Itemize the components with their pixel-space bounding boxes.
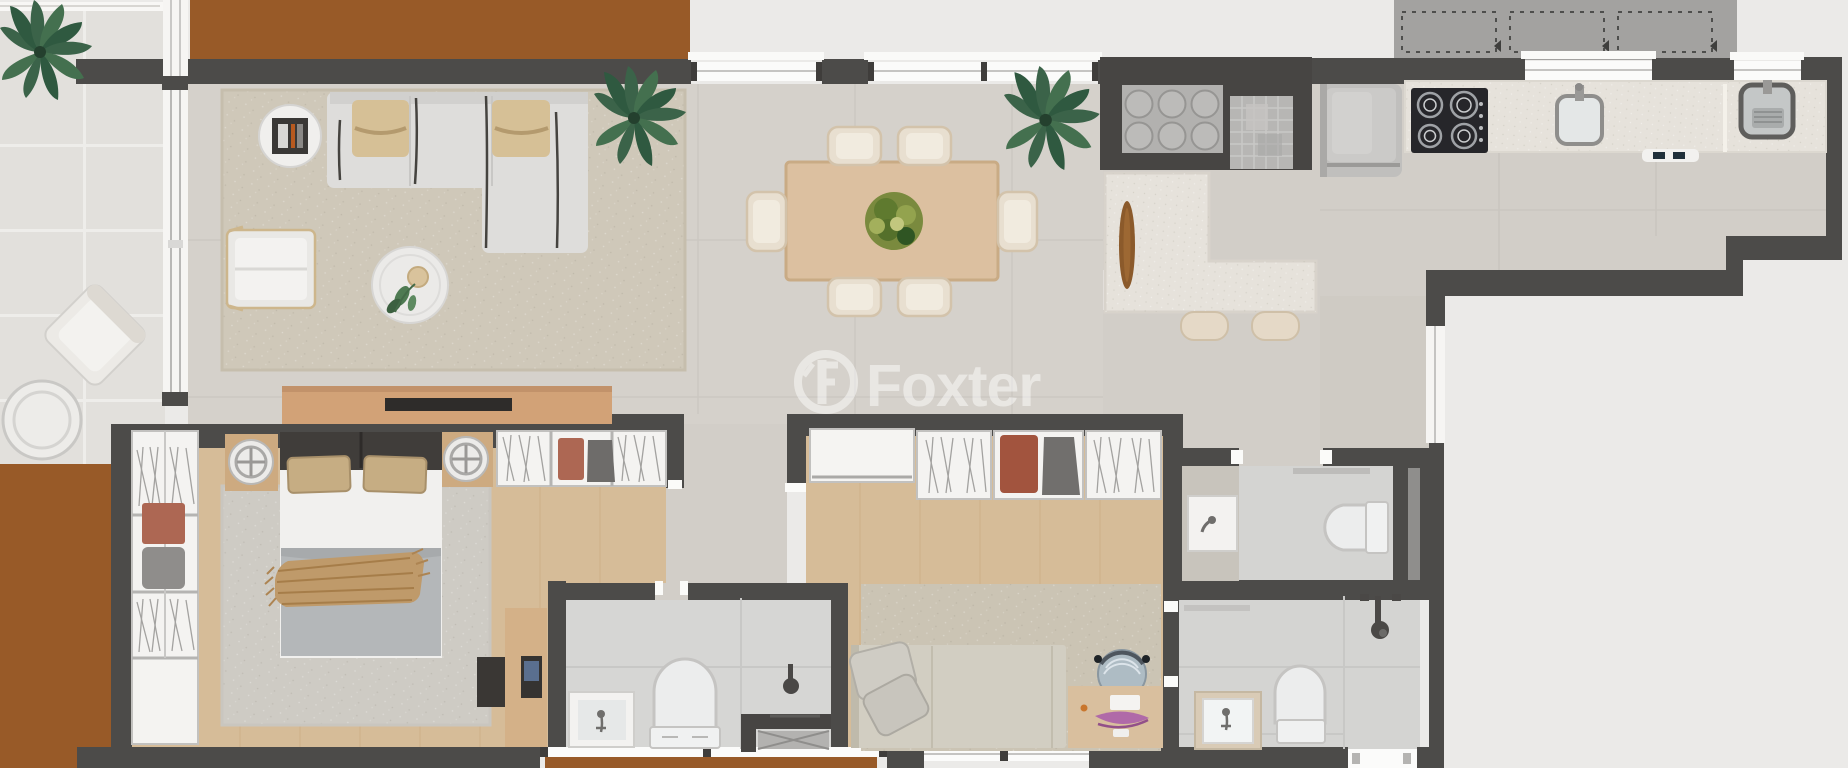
svg-text:Foxter: Foxter	[866, 353, 1041, 419]
